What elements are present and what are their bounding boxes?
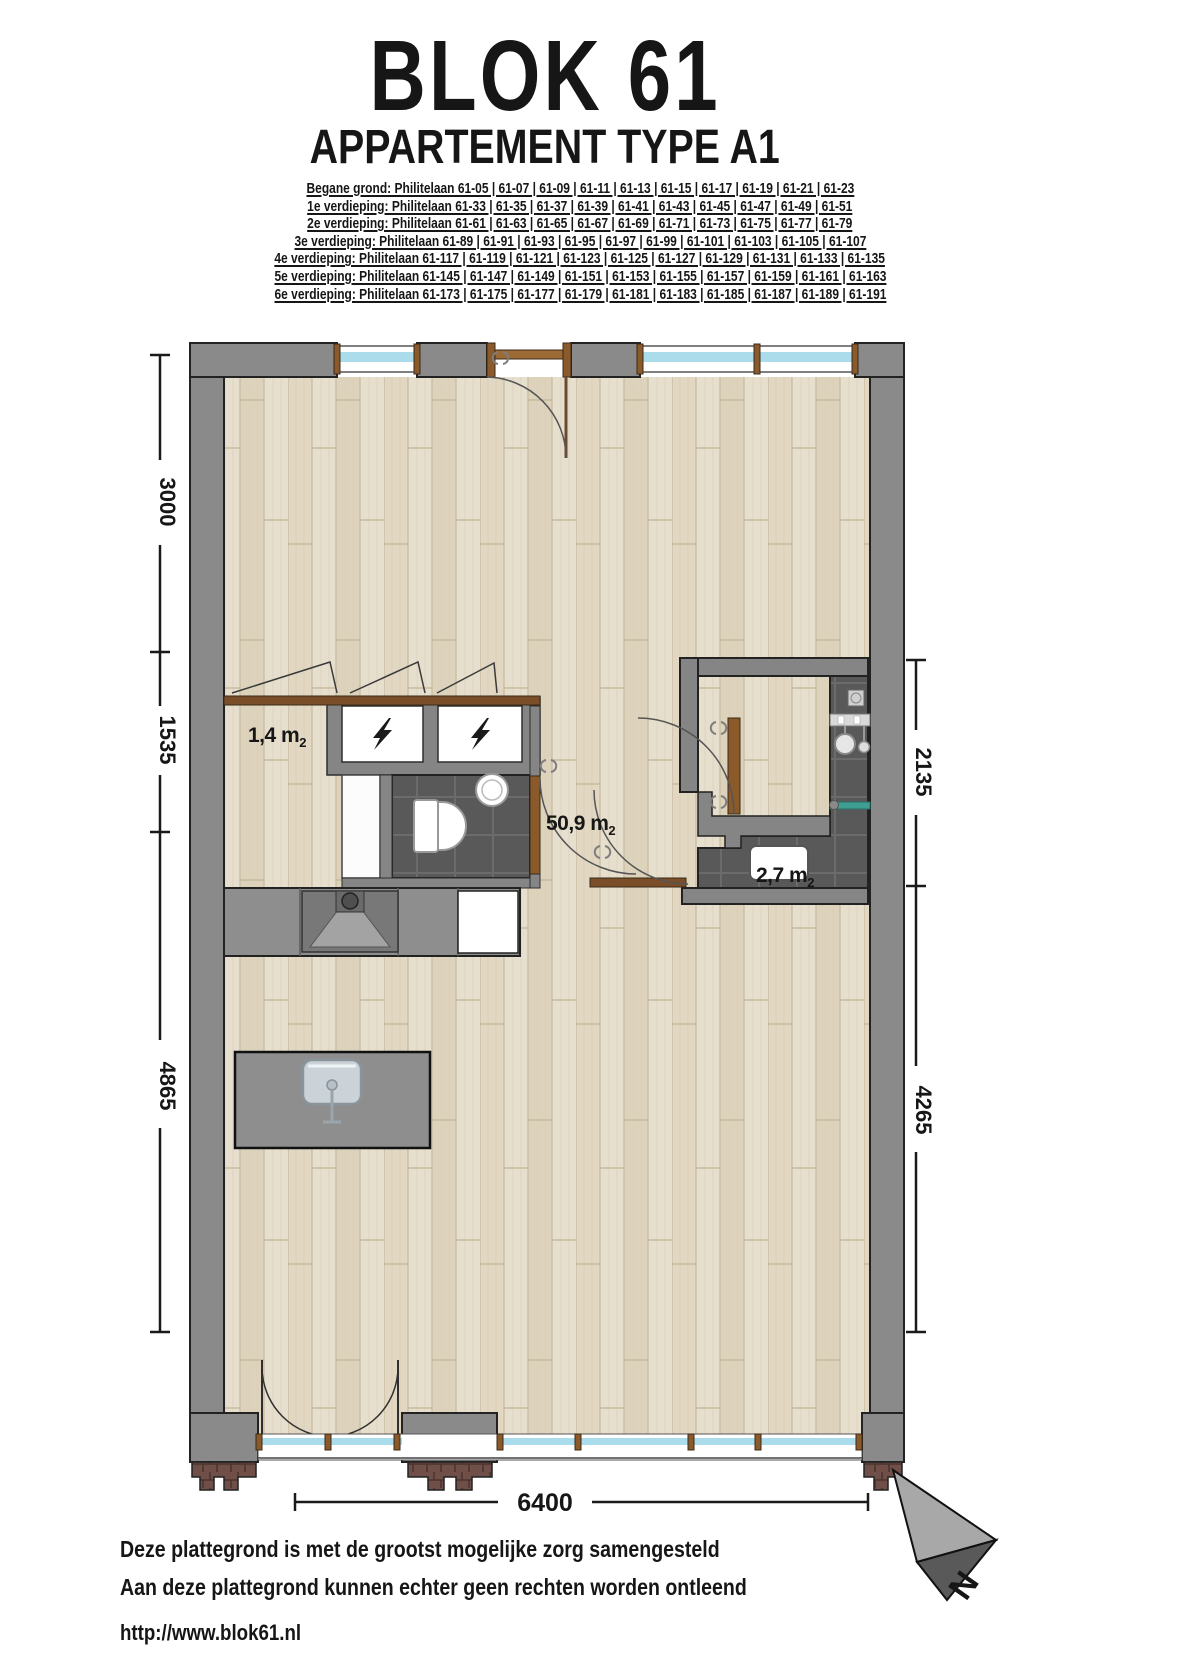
toilet-tank bbox=[414, 800, 438, 852]
bottom-wall-pier bbox=[862, 1413, 904, 1462]
top-wall-segment bbox=[855, 343, 904, 377]
page-title: BLOK 61 bbox=[0, 26, 1090, 126]
top-wall-segment bbox=[571, 343, 640, 377]
dim-right-2135: 2135 bbox=[911, 748, 936, 797]
dim-left-1535: 1535 bbox=[155, 716, 180, 765]
address-line: 3e verdieping: Philitelaan 61-89 | 61-91… bbox=[0, 233, 1160, 251]
top-wall-segment bbox=[190, 343, 337, 377]
bathroom-wall bbox=[680, 658, 698, 792]
dim-right-4265: 4265 bbox=[911, 1086, 936, 1135]
entry-opening bbox=[487, 343, 571, 377]
shower-wand-icon bbox=[859, 742, 870, 753]
screen-knob bbox=[830, 801, 839, 810]
toilet-wall bbox=[530, 706, 540, 776]
dim-bottom-6400: 6400 bbox=[517, 1489, 573, 1517]
disclaimer-line-2: Aan deze plattegrond kunnen echter geen … bbox=[120, 1576, 857, 1599]
shower-head-icon bbox=[835, 734, 855, 754]
address-line: 2e verdieping: Philitelaan 61-61 | 61-63… bbox=[0, 215, 1160, 233]
title-text: BLOK 61 bbox=[369, 26, 720, 126]
website-link[interactable]: http://www.blok61.nl bbox=[120, 1620, 333, 1646]
kitchen-counter bbox=[224, 888, 520, 956]
bathroom-door-leaf bbox=[728, 718, 740, 814]
left-wall bbox=[190, 343, 224, 1437]
bifold-door-rail bbox=[224, 696, 540, 705]
hand-basin bbox=[476, 774, 508, 806]
floorplan-drawing: 1,4 m2 50,9 m2 2,7 m2 3000 1535 4865 213… bbox=[120, 330, 1020, 1630]
address-list: Begane grond: Philitelaan 61-05 | 61-07 … bbox=[0, 180, 1160, 303]
disclaimer-line-1: Deze plattegrond is met de grootst mogel… bbox=[120, 1538, 825, 1561]
faucet-icon bbox=[342, 893, 358, 909]
toilet-wall bbox=[380, 775, 392, 878]
north-arrow-icon: N bbox=[893, 1470, 996, 1607]
window-sill bbox=[258, 1434, 862, 1460]
room-label-badkamer: 2,7 m2 bbox=[756, 864, 814, 890]
address-line: Begane grond: Philitelaan 61-05 | 61-07 … bbox=[0, 180, 1160, 198]
right-wall bbox=[870, 343, 904, 1462]
room-label-berging: 1,4 m2 bbox=[248, 724, 306, 750]
dim-left-4865: 4865 bbox=[155, 1062, 180, 1111]
address-line: 4e verdieping: Philitelaan 61-117 | 61-1… bbox=[0, 250, 1160, 268]
top-wall-segment bbox=[417, 343, 487, 377]
shower-control-bar bbox=[830, 714, 870, 726]
bathroom-wall bbox=[682, 888, 868, 904]
brick-footings bbox=[192, 1462, 902, 1490]
shower-control bbox=[838, 716, 844, 724]
door-sill bbox=[495, 350, 563, 359]
window-glazing bbox=[497, 1438, 862, 1445]
toilet-wall bbox=[342, 878, 540, 888]
bottom-wall-pier bbox=[190, 1413, 258, 1462]
toilet-door-leaf bbox=[530, 776, 540, 874]
counter-appliance bbox=[458, 891, 518, 953]
toilet-cabinet bbox=[342, 775, 380, 878]
shower-drain-icon bbox=[848, 690, 864, 706]
door-jamb bbox=[563, 343, 571, 377]
page: { "header": { "title": "BLOK 61", "subti… bbox=[0, 0, 1188, 1680]
room-label-woonkamer: 50,9 m2 bbox=[546, 812, 615, 838]
page-subtitle: APPARTEMENT TYPE A1 bbox=[0, 124, 1090, 172]
dim-left-3000: 3000 bbox=[155, 478, 180, 527]
kitchen-island bbox=[235, 1052, 430, 1148]
window-glazing bbox=[337, 352, 417, 362]
bathroom-wall bbox=[680, 658, 868, 676]
drain-icon bbox=[327, 1080, 337, 1090]
bottom-windows bbox=[192, 1434, 902, 1490]
shower-control bbox=[854, 716, 860, 724]
address-line: 5e verdieping: Philitelaan 61-145 | 61-1… bbox=[0, 268, 1160, 286]
subtitle-text: APPARTEMENT TYPE A1 bbox=[310, 124, 780, 172]
window-glazing bbox=[640, 352, 855, 362]
address-line: 6e verdieping: Philitelaan 61-173 | 61-1… bbox=[0, 286, 1160, 304]
address-line: 1e verdieping: Philitelaan 61-33 | 61-35… bbox=[0, 198, 1160, 216]
toilet-wall bbox=[530, 874, 540, 888]
